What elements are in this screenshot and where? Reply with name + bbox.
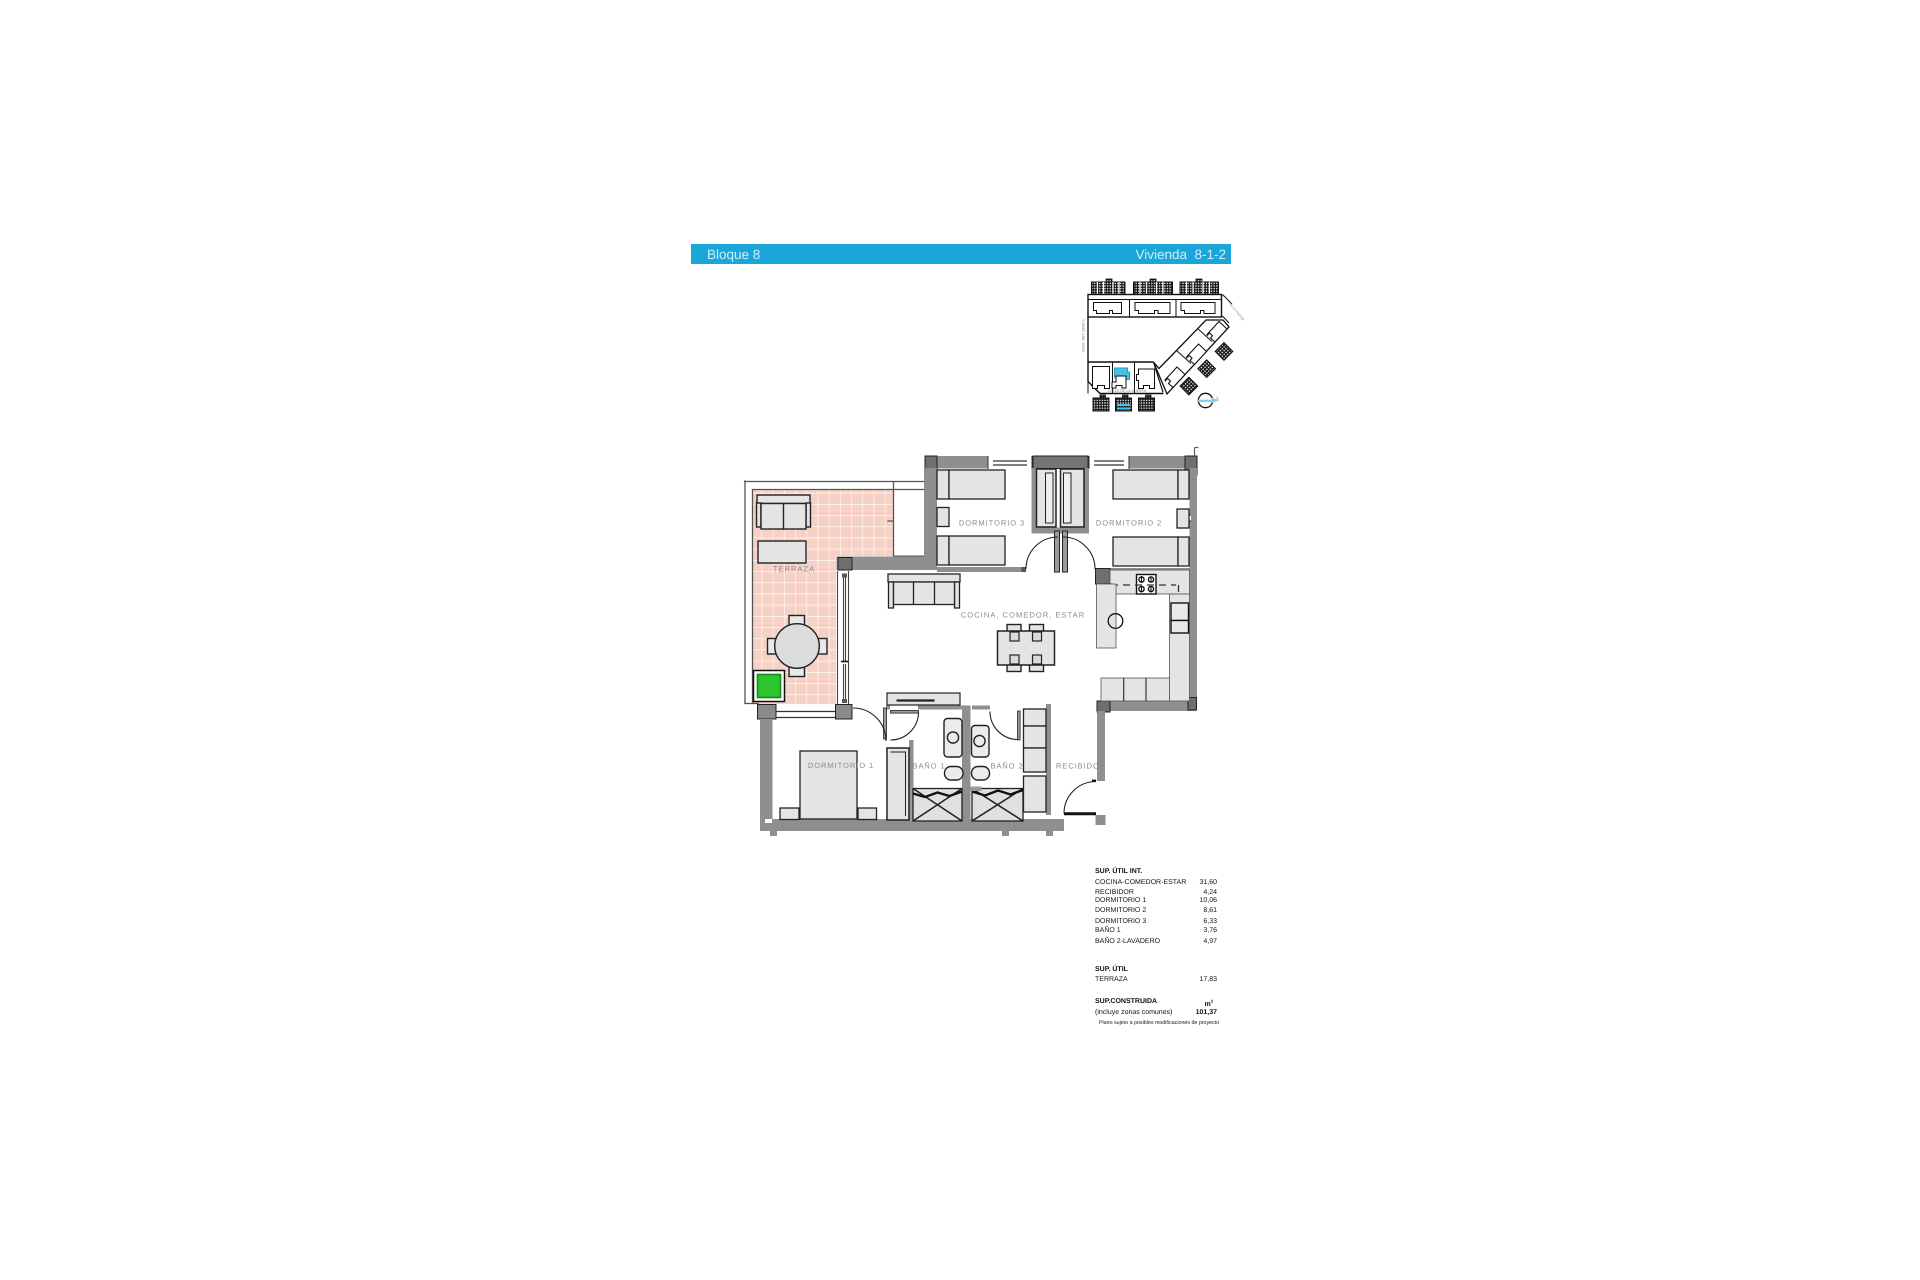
svg-text:RECIBIDOR: RECIBIDOR [1056,762,1106,771]
svg-text:BAÑO 2: BAÑO 2 [990,762,1023,771]
svg-text:AVDA. REY JUAN C.: AVDA. REY JUAN C. [1082,318,1086,352]
svg-text:DORMITORIO 2: DORMITORIO 2 [1096,519,1162,528]
svg-text:DORMITORIO 1: DORMITORIO 1 [808,761,874,770]
svg-text:CALLE PINTOR: CALLE PINTOR [1228,301,1246,322]
svg-text:COCINA, COMEDOR, ESTAR: COCINA, COMEDOR, ESTAR [961,611,1085,620]
svg-text:DORMITORIO 3: DORMITORIO 3 [959,519,1025,528]
svg-text:TERRAZA: TERRAZA [773,565,815,574]
svg-text:CALLE DE LA HUERTA: CALLE DE LA HUERTA [1108,389,1147,393]
svg-text:BAÑO 1: BAÑO 1 [912,762,945,771]
